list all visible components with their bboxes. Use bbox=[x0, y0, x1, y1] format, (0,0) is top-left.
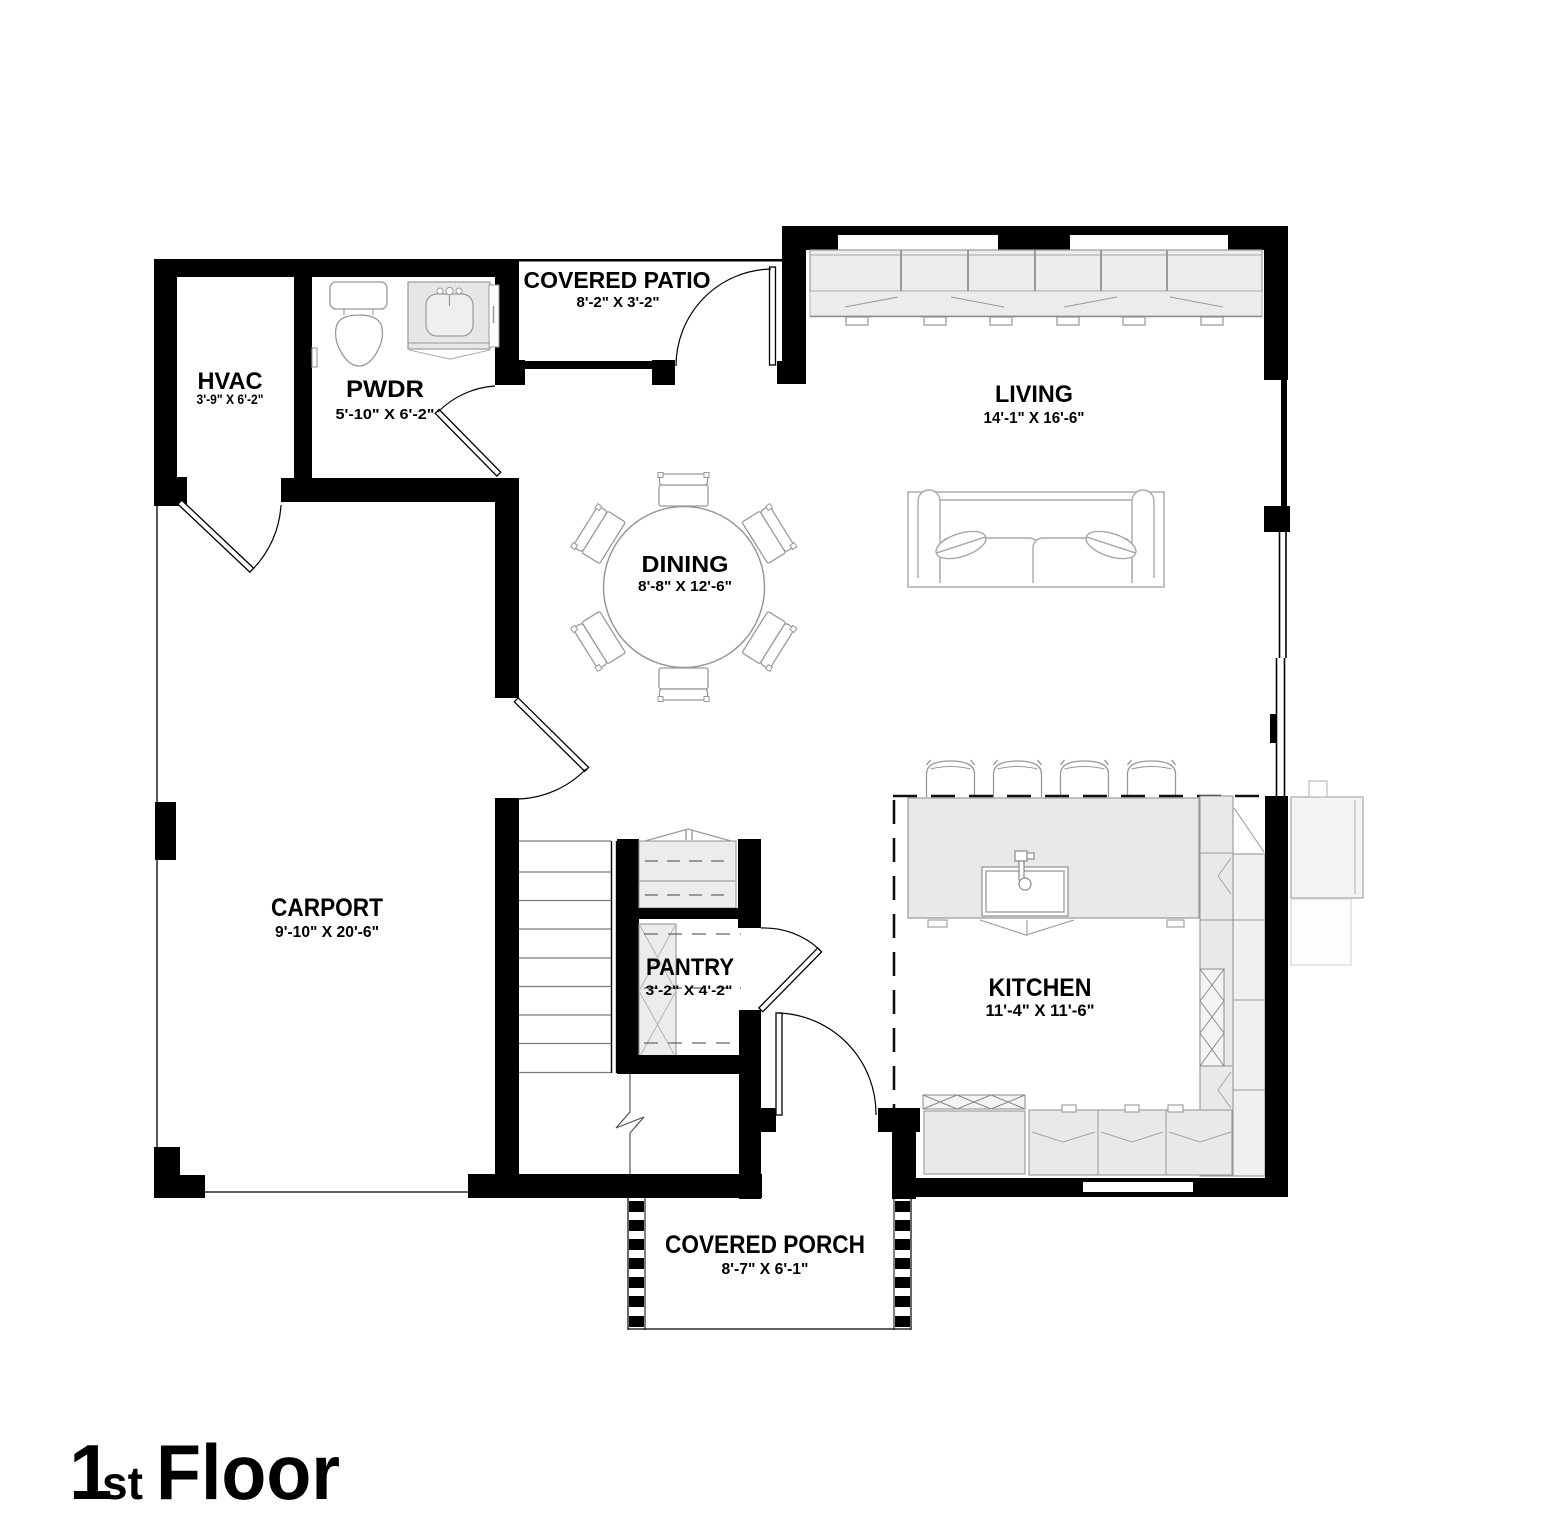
svg-text:9'-10" X 20'-6": 9'-10" X 20'-6" bbox=[275, 924, 379, 941]
svg-text:CARPORT: CARPORT bbox=[271, 894, 383, 922]
svg-text:KITCHEN: KITCHEN bbox=[989, 974, 1092, 1002]
svg-text:14'-1" X 16'-6": 14'-1" X 16'-6" bbox=[984, 410, 1085, 427]
svg-text:LIVING: LIVING bbox=[995, 381, 1073, 408]
svg-text:COVERED PORCH: COVERED PORCH bbox=[665, 1231, 865, 1259]
svg-text:5'-10" X 6'-2": 5'-10" X 6'-2" bbox=[336, 406, 435, 423]
svg-text:11'-4" X 11'-6": 11'-4" X 11'-6" bbox=[986, 1002, 1095, 1020]
svg-text:DINING: DINING bbox=[642, 551, 729, 577]
svg-text:8'-7" X 6'-1": 8'-7" X 6'-1" bbox=[722, 1261, 809, 1278]
svg-text:PWDR: PWDR bbox=[346, 376, 424, 403]
svg-text:1stFloor: 1stFloor bbox=[69, 1428, 340, 1516]
svg-text:8'-8" X 12'-6": 8'-8" X 12'-6" bbox=[638, 578, 732, 595]
svg-text:COVERED PATIO: COVERED PATIO bbox=[524, 267, 711, 293]
svg-text:3'-9" X 6'-2": 3'-9" X 6'-2" bbox=[197, 391, 264, 407]
svg-text:PANTRY: PANTRY bbox=[646, 954, 734, 981]
svg-text:8'-2" X 3'-2": 8'-2" X 3'-2" bbox=[577, 294, 660, 311]
svg-text:3'-2" X 4'-2": 3'-2" X 4'-2" bbox=[646, 982, 733, 998]
